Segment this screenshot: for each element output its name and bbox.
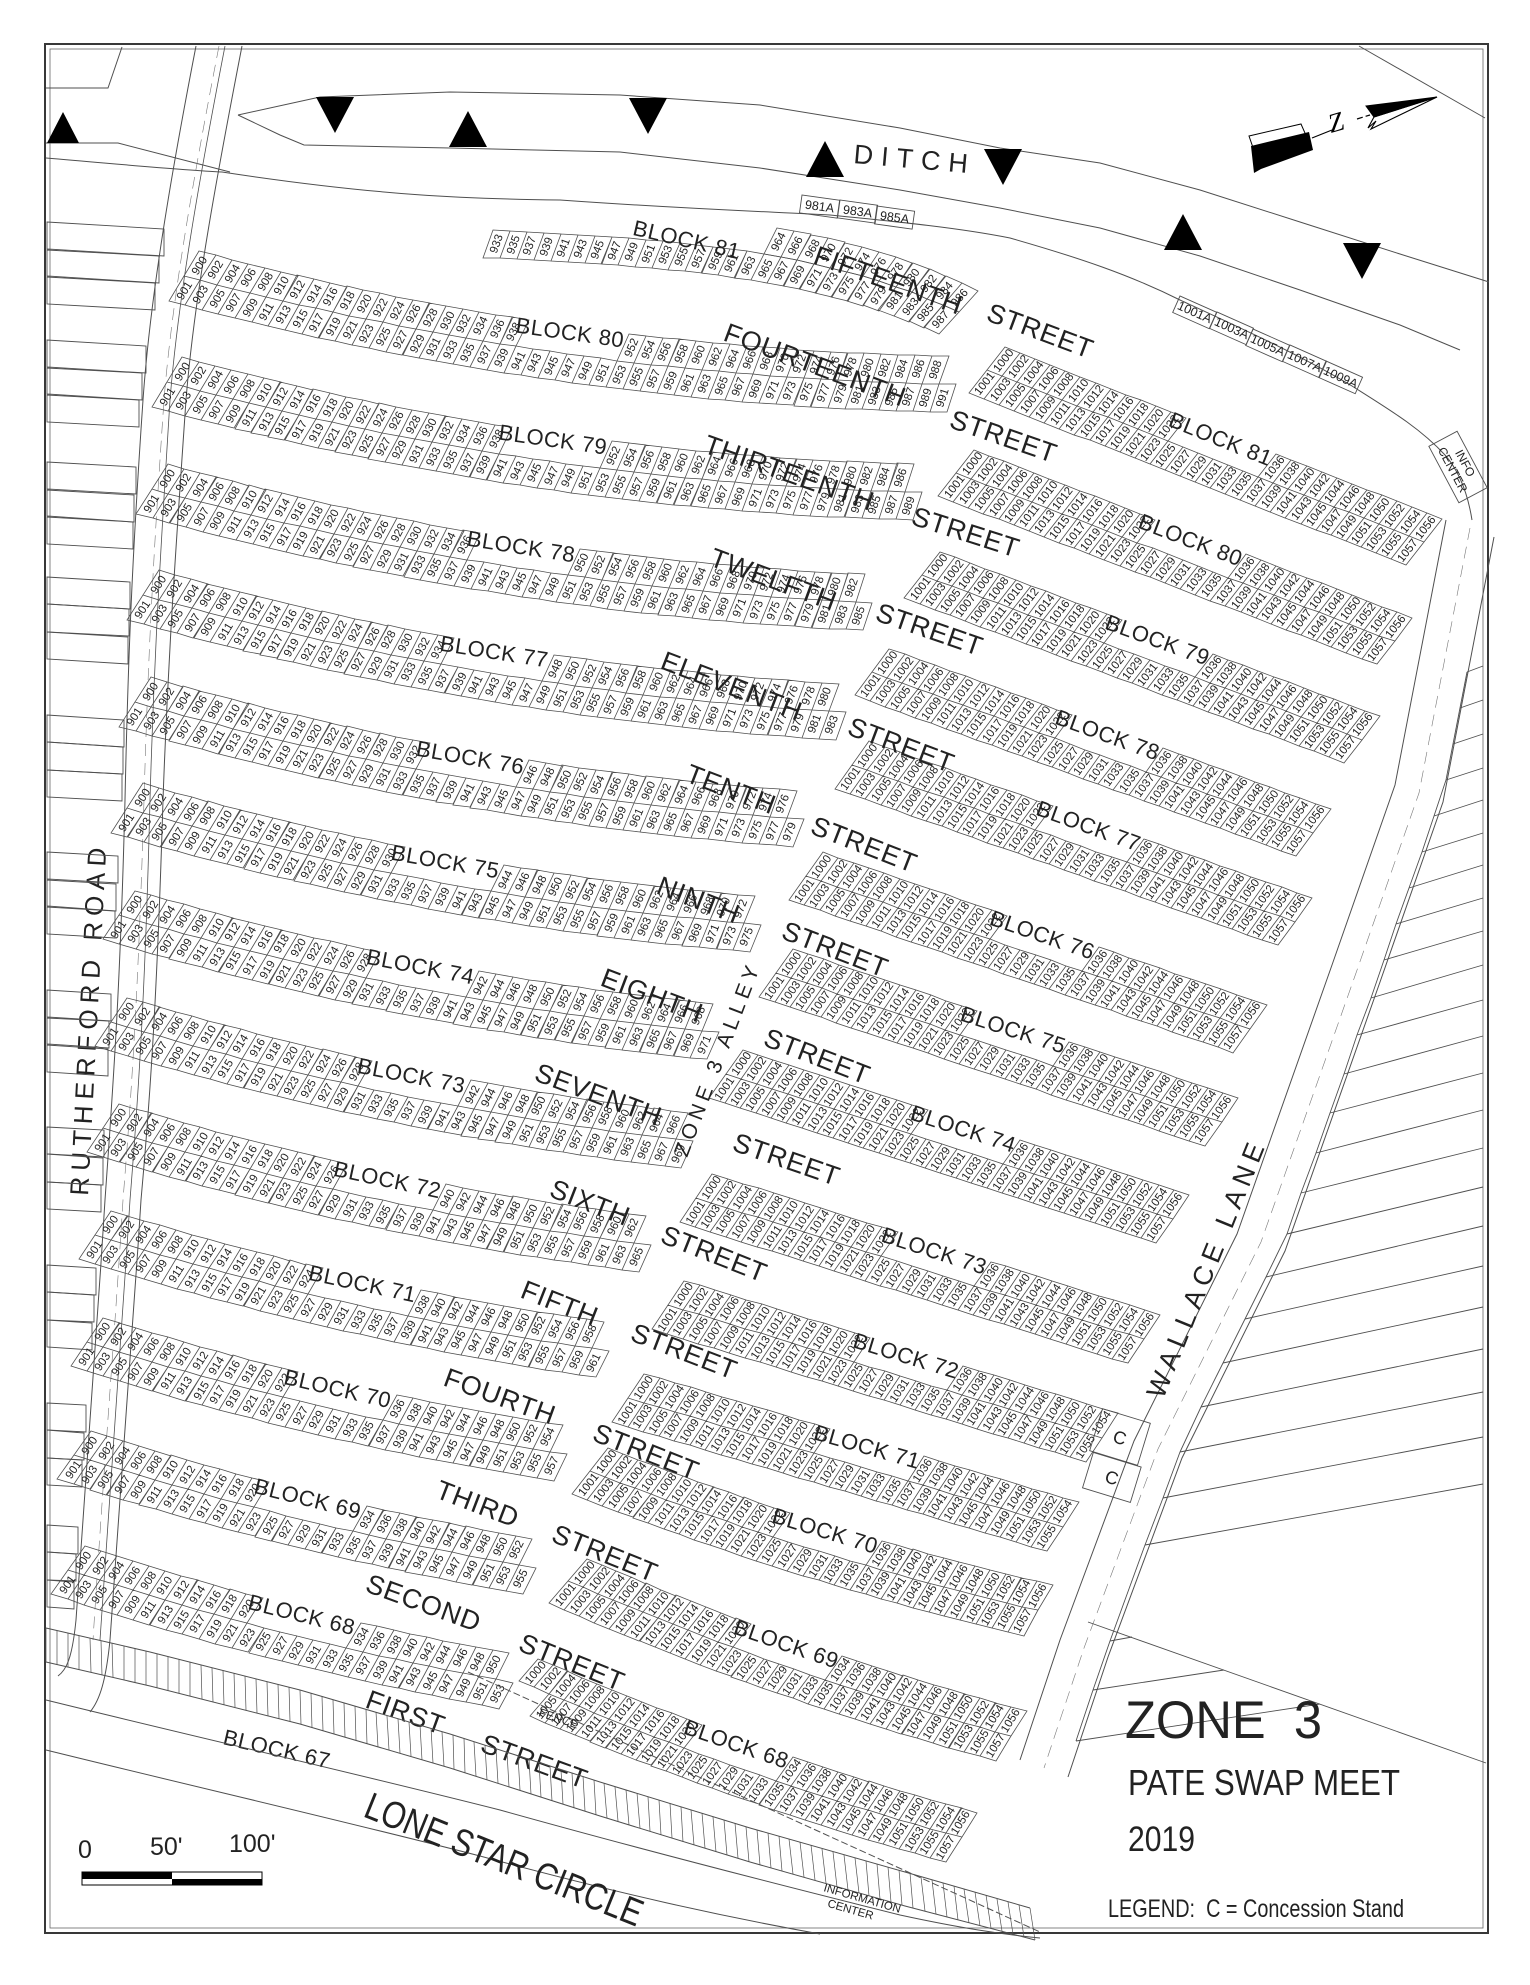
svg-text:ZONE 3: ZONE 3 (1125, 1691, 1322, 1750)
svg-text:50': 50' (150, 1833, 183, 1861)
svg-text:LEGEND: C = Concession Stand: LEGEND: C = Concession Stand (1108, 1895, 1404, 1923)
svg-text:0: 0 (78, 1836, 92, 1864)
svg-text:PATE SWAP MEET: PATE SWAP MEET (1128, 1762, 1400, 1803)
svg-text:2019: 2019 (1128, 1820, 1195, 1859)
svg-text:100': 100' (229, 1830, 275, 1858)
